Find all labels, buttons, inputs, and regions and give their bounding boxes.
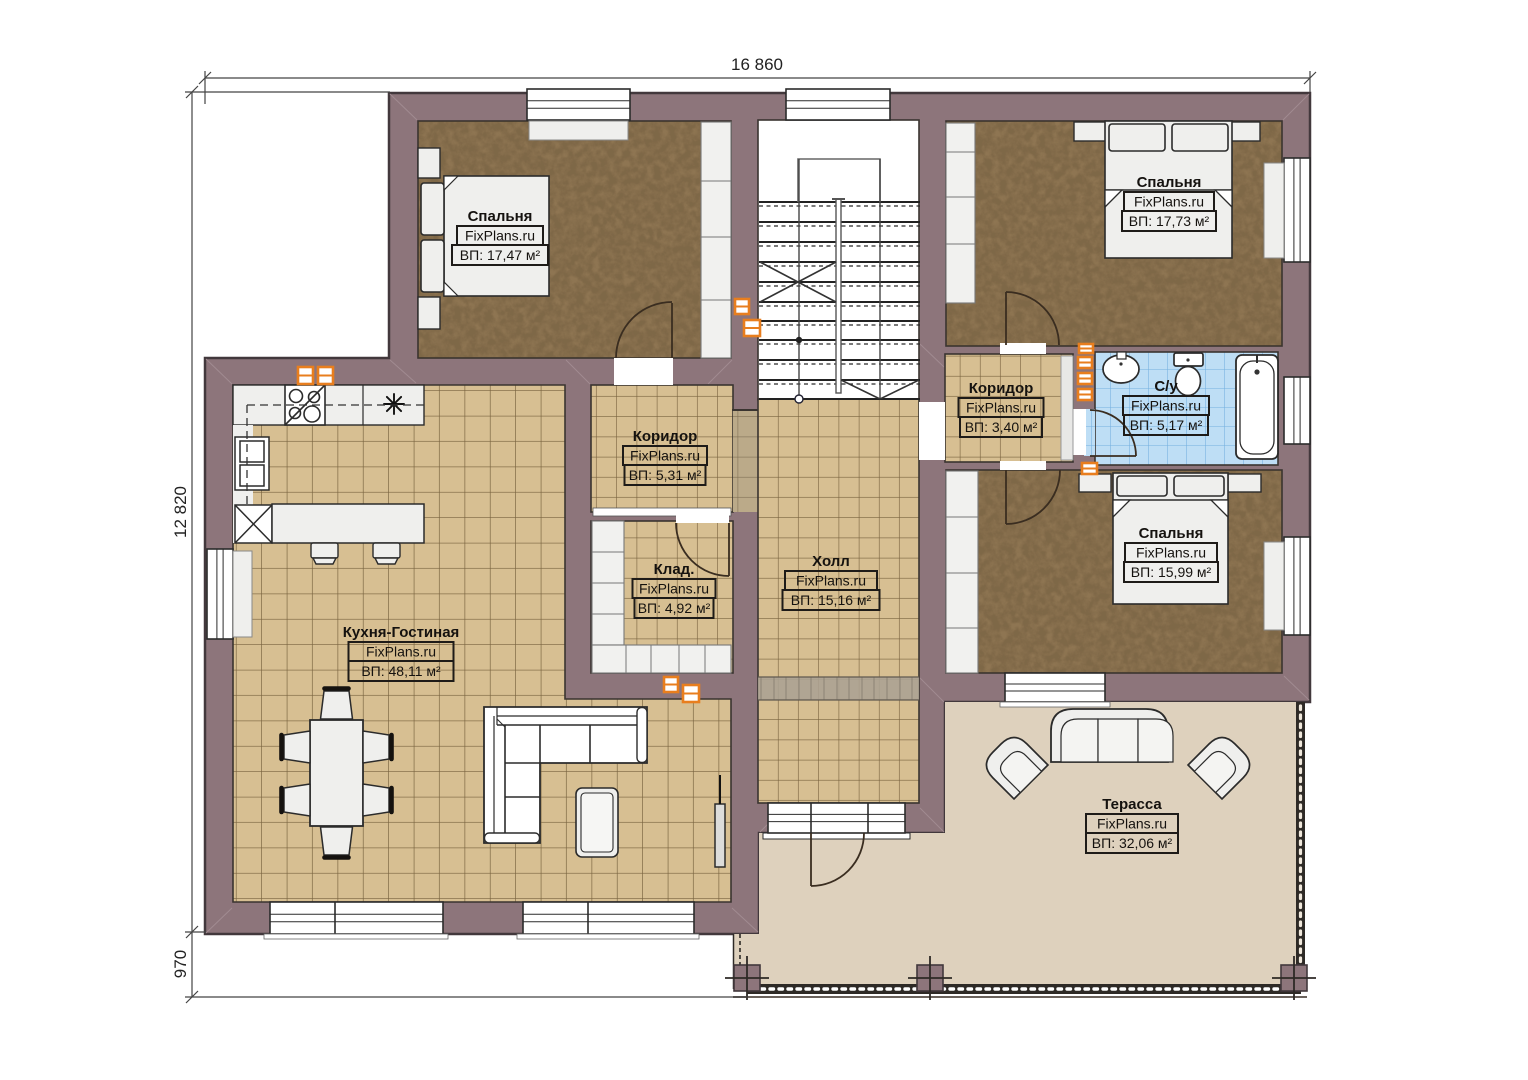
svg-text:ВП: 17,47 м²: ВП: 17,47 м² bbox=[460, 247, 541, 263]
svg-text:Терасса: Терасса bbox=[1102, 796, 1162, 813]
svg-text:FixPlans.ru: FixPlans.ru bbox=[796, 573, 866, 589]
svg-text:FixPlans.ru: FixPlans.ru bbox=[639, 581, 709, 597]
svg-text:FixPlans.ru: FixPlans.ru bbox=[1131, 398, 1201, 414]
svg-text:970: 970 bbox=[171, 950, 190, 978]
svg-text:ВП: 15,16 м²: ВП: 15,16 м² bbox=[791, 592, 872, 608]
svg-text:FixPlans.ru: FixPlans.ru bbox=[465, 228, 535, 244]
svg-text:ВП: 4,92 м²: ВП: 4,92 м² bbox=[638, 600, 711, 616]
svg-text:ВП: 17,73 м²: ВП: 17,73 м² bbox=[1129, 213, 1210, 229]
svg-text:Клад.: Клад. bbox=[654, 561, 695, 578]
svg-text:ВП: 48,11 м²: ВП: 48,11 м² bbox=[361, 663, 441, 679]
svg-text:Спальня: Спальня bbox=[1139, 525, 1204, 542]
svg-text:Коридор: Коридор bbox=[969, 380, 1034, 397]
svg-text:ВП: 32,06 м²: ВП: 32,06 м² bbox=[1092, 835, 1173, 851]
svg-text:ВП: 5,31 м²: ВП: 5,31 м² bbox=[629, 467, 702, 483]
svg-text:12 820: 12 820 bbox=[171, 486, 190, 538]
svg-text:ВП: 5,17 м²: ВП: 5,17 м² bbox=[1130, 417, 1203, 433]
svg-text:16 860: 16 860 bbox=[731, 55, 783, 74]
svg-text:Спальня: Спальня bbox=[468, 208, 533, 225]
svg-text:ВП: 15,99 м²: ВП: 15,99 м² bbox=[1131, 564, 1212, 580]
svg-text:FixPlans.ru: FixPlans.ru bbox=[630, 448, 700, 464]
svg-text:Кухня-Гостиная: Кухня-Гостиная bbox=[343, 624, 460, 641]
svg-text:Холл: Холл bbox=[812, 553, 850, 570]
svg-text:FixPlans.ru: FixPlans.ru bbox=[966, 400, 1036, 416]
svg-text:FixPlans.ru: FixPlans.ru bbox=[366, 644, 436, 660]
svg-text:ВП: 3,40 м²: ВП: 3,40 м² bbox=[965, 419, 1038, 435]
svg-text:С/у: С/у bbox=[1154, 378, 1178, 395]
svg-text:FixPlans.ru: FixPlans.ru bbox=[1134, 194, 1204, 210]
svg-text:Коридор: Коридор bbox=[633, 428, 698, 445]
svg-text:FixPlans.ru: FixPlans.ru bbox=[1097, 816, 1167, 832]
svg-text:Спальня: Спальня bbox=[1137, 174, 1202, 191]
svg-text:FixPlans.ru: FixPlans.ru bbox=[1136, 545, 1206, 561]
